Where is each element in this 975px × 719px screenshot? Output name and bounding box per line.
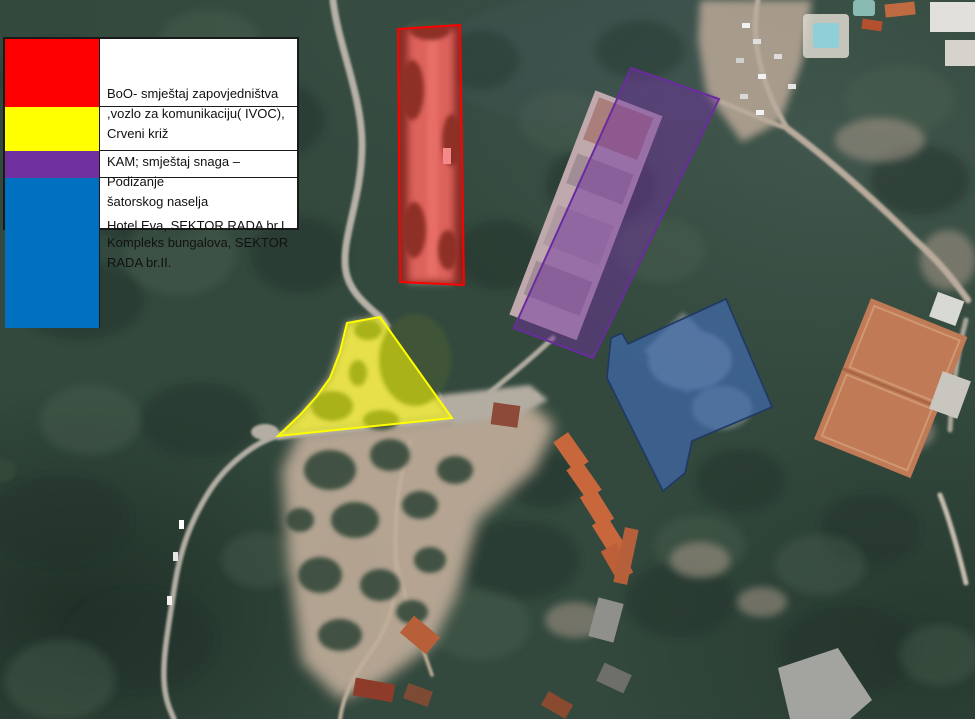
legend-swatch-blue xyxy=(5,178,100,328)
blue-swatch-rect xyxy=(5,178,99,328)
overlay-boo-area xyxy=(398,25,464,285)
legend-row-bungalovi: Kompleks bungalova, SEKTOR RADA br.II. xyxy=(5,177,297,228)
legend-row-hotel-eva: Hotel Eva, SEKTOR RADA br.I. xyxy=(5,150,297,177)
pool-area xyxy=(803,0,875,58)
legend-row-boo: BoO- smještaj zapovjedništva ,vozlo za k… xyxy=(5,39,297,106)
satellite-map: BoO- smještaj zapovjedništva ,vozlo za k… xyxy=(0,0,975,719)
legend-row-kam: KAM; smještaj snaga – Podizanje šatorsko… xyxy=(5,106,297,150)
legend: BoO- smještaj zapovjedništva ,vozlo za k… xyxy=(3,37,299,230)
legend-label-bungalovi: Kompleks bungalova, SEKTOR RADA br.II. xyxy=(100,178,297,328)
